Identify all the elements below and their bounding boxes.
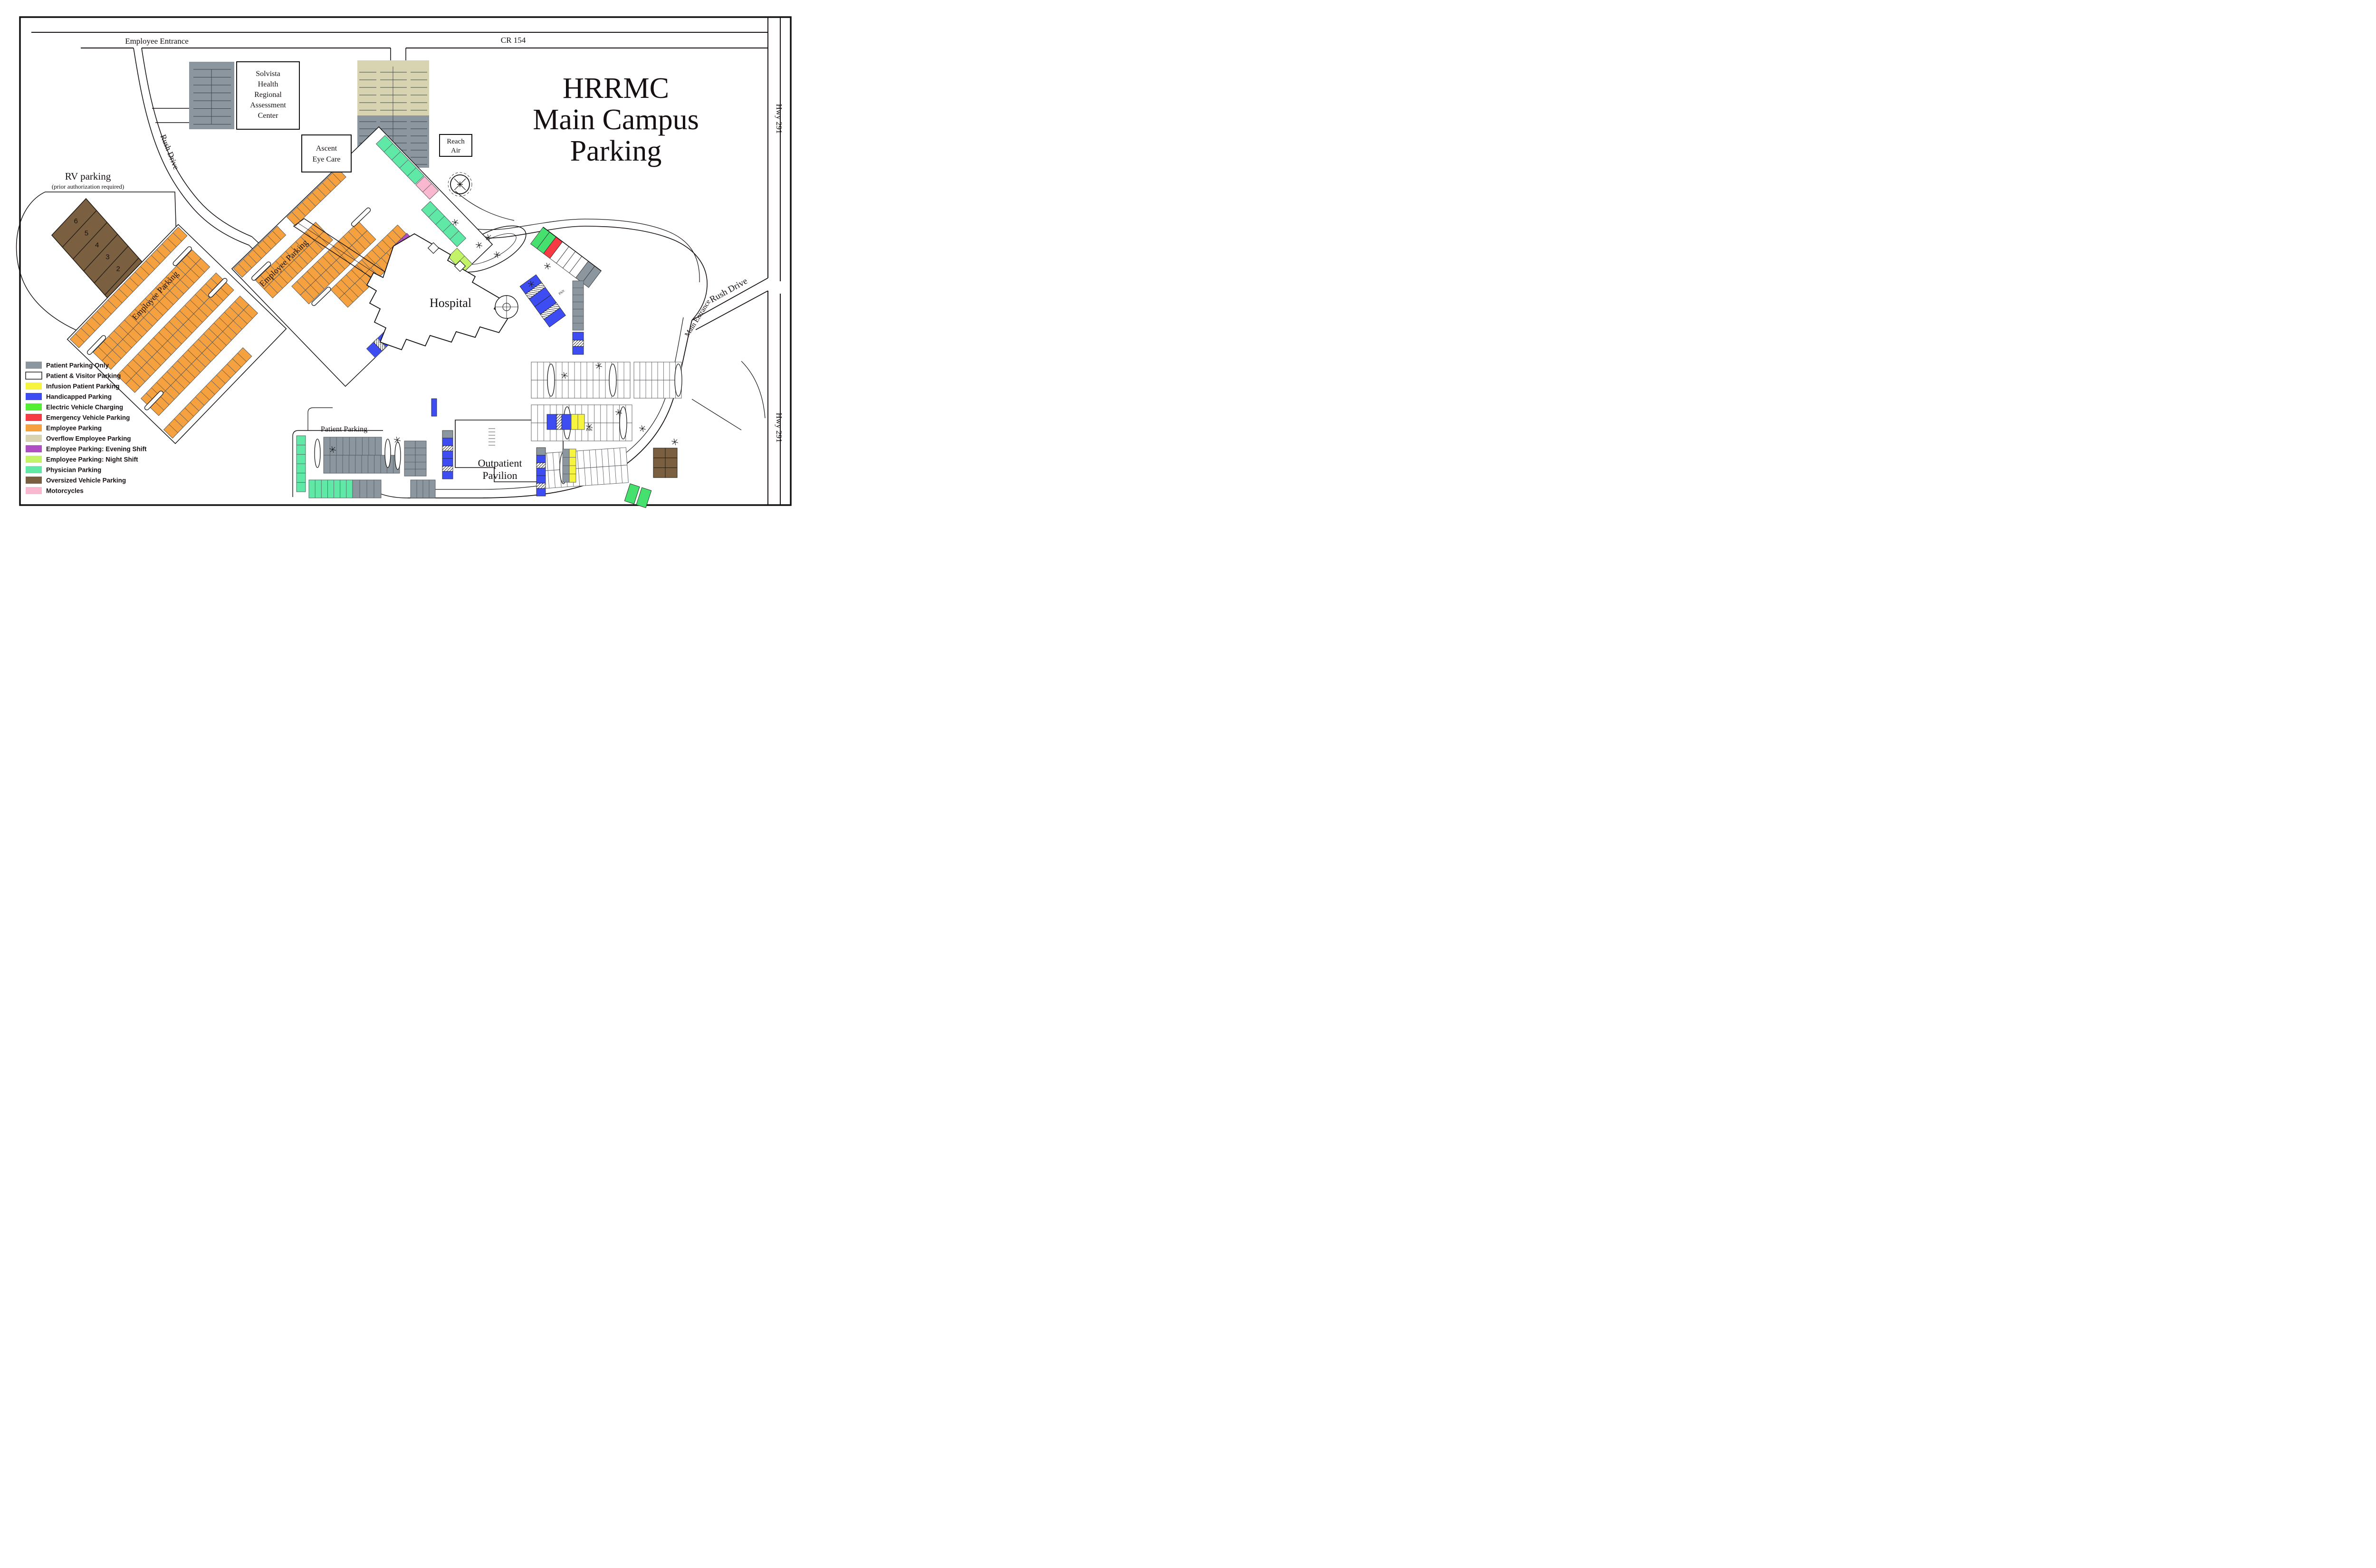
legend-label: Infusion Patient Parking bbox=[46, 383, 120, 390]
solvista-line: Assessment bbox=[250, 101, 286, 109]
oversized-vehicle-block bbox=[653, 448, 677, 478]
legend-swatch bbox=[26, 393, 42, 400]
pan-marker-south: PAN bbox=[586, 428, 592, 432]
map-title-line3: Parking bbox=[570, 135, 662, 167]
legend-item: Infusion Patient Parking bbox=[26, 382, 120, 390]
legend-swatch bbox=[26, 362, 42, 369]
legend-swatch bbox=[26, 382, 42, 390]
legend-swatch bbox=[26, 403, 42, 411]
legend-label: Employee Parking bbox=[46, 425, 102, 432]
legend-label: Motorcycles bbox=[46, 488, 84, 495]
legend-item: Motorcycles bbox=[26, 487, 84, 495]
legend-label: Employee Parking: Evening Shift bbox=[46, 446, 147, 453]
ascent-line: Ascent bbox=[316, 144, 337, 153]
rv-spot-number: 4 bbox=[95, 241, 99, 249]
legend-swatch bbox=[26, 456, 42, 463]
solvista-line: Center bbox=[258, 112, 278, 120]
reach-air-label-box: Reach Air bbox=[440, 134, 472, 156]
legend-item: Emergency Vehicle Parking bbox=[26, 414, 130, 421]
reach-air-line: Reach bbox=[447, 138, 465, 145]
legend-item: Oversized Vehicle Parking bbox=[26, 477, 126, 484]
legend-label: Patient & Visitor Parking bbox=[46, 373, 121, 380]
legend-swatch bbox=[26, 435, 42, 442]
legend-item: Employee Parking bbox=[26, 424, 102, 432]
legend-swatch bbox=[26, 414, 42, 421]
legend-swatch bbox=[26, 445, 42, 452]
cr154-label: CR 154 bbox=[501, 36, 526, 45]
rv-spot-number: 3 bbox=[105, 253, 109, 261]
rv-parking-title: RV parking bbox=[65, 171, 111, 182]
legend-item: Physician Parking bbox=[26, 466, 101, 474]
ascent-label-box: Ascent Eye Care bbox=[302, 135, 351, 172]
legend-swatch bbox=[26, 466, 42, 473]
legend-swatch bbox=[26, 424, 42, 431]
reach-air-line: Air bbox=[451, 147, 460, 154]
legend-item: Patient Parking Only bbox=[26, 362, 109, 369]
legend-item: Patient & Visitor Parking bbox=[26, 372, 121, 380]
legend-label: Handicapped Parking bbox=[46, 393, 112, 401]
outpatient-label-line2: Pavilion bbox=[482, 469, 517, 481]
solvista-line: Solvista bbox=[256, 70, 280, 78]
legend-swatch bbox=[26, 477, 42, 484]
legend-label: Patient Parking Only bbox=[46, 362, 109, 369]
legend-item: Handicapped Parking bbox=[26, 393, 112, 401]
solvista-parking-lot bbox=[189, 62, 234, 129]
rv-parking-subtitle: (prior authorization required) bbox=[52, 183, 124, 190]
solvista-label-box: Solvista Health Regional Assessment Cent… bbox=[237, 62, 299, 129]
hospital-label: Hospital bbox=[430, 296, 471, 310]
employee-entrance-label: Employee Entrance bbox=[125, 37, 189, 46]
outpatient-label-line1: Outpatient bbox=[478, 457, 522, 469]
legend-label: Oversized Vehicle Parking bbox=[46, 477, 126, 484]
map-title-line2: Main Campus bbox=[533, 104, 699, 136]
legend-item: Overflow Employee Parking bbox=[26, 435, 131, 442]
legend-swatch bbox=[26, 487, 42, 494]
legend-item: Electric Vehicle Charging bbox=[26, 403, 123, 411]
hwy291-label-bottom: Hwy 291 bbox=[775, 413, 784, 443]
legend-label: Electric Vehicle Charging bbox=[46, 404, 123, 411]
rv-spot-number: 5 bbox=[85, 229, 88, 237]
map-title-line1: HRRMC bbox=[563, 72, 669, 105]
solvista-line: Health bbox=[258, 80, 278, 88]
legend-label: Overflow Employee Parking bbox=[46, 435, 131, 442]
hrrmc-campus-map: 654321 HRRMC Main Campus Parking Employe… bbox=[0, 0, 808, 523]
rv-spot-number: 2 bbox=[116, 265, 120, 273]
legend-label: Physician Parking bbox=[46, 467, 101, 474]
solvista-line: Regional bbox=[254, 91, 282, 99]
rv-spot-number: 6 bbox=[74, 217, 78, 225]
ascent-line: Eye Care bbox=[312, 155, 340, 163]
map-canvas: 654321 HRRMC Main Campus Parking Employe… bbox=[0, 0, 808, 523]
legend-swatch bbox=[26, 372, 42, 379]
patient-strip-east bbox=[573, 281, 584, 354]
legend-label: Emergency Vehicle Parking bbox=[46, 414, 130, 421]
hwy291-label-top: Hwy 291 bbox=[775, 104, 784, 134]
patient-parking-label: Patient Parking bbox=[321, 425, 367, 433]
legend-label: Employee Parking: Night Shift bbox=[46, 456, 138, 463]
